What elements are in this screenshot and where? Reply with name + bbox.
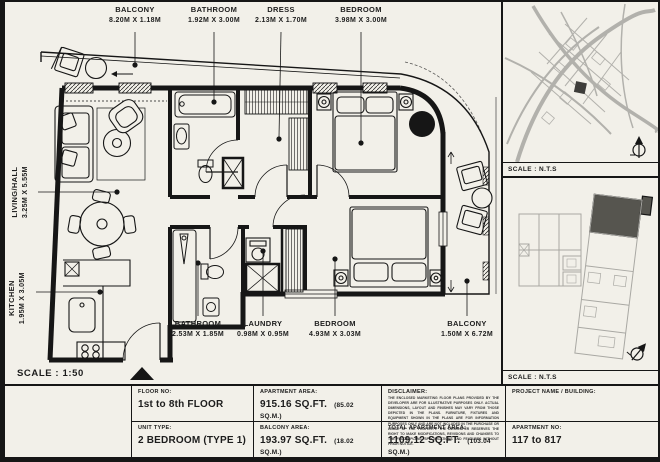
kitchen-counter — [63, 260, 130, 360]
room-label-kitchen: KITCHEN 1.95M X 3.05M — [7, 250, 27, 346]
location-map-panel: SCALE : N.T.S — [503, 2, 658, 176]
total-area-cell: TOTAL APARTMENT AREA: 1109.12 SQ.FT.(103… — [382, 422, 506, 458]
entry-marker-icon — [130, 367, 154, 380]
location-map — [503, 2, 658, 164]
direction-arrow-icon — [111, 71, 133, 77]
balcony-area-cell: BALCONY AREA: 193.97 SQ.FT.(18.02 SQ.M.) — [254, 422, 382, 458]
north-arrow-icon — [625, 337, 651, 363]
bedroom-top-furniture — [317, 92, 435, 172]
bathroom-top-fixtures — [174, 92, 235, 183]
title-block: FLOOR NO: 1st to 8th FLOOR UNIT TYPE: 2 … — [5, 384, 658, 457]
drawing-sheet: BALCONY 8.20M X 1.18M BATHROOM 1.92M X 3… — [0, 0, 660, 462]
room-label-living: LIVING/HALL 3.25M X 5.55M — [10, 144, 30, 240]
key-plan-panel: SCALE : N.T.S — [503, 178, 658, 384]
duct-shafts — [223, 158, 279, 292]
dress-wardrobes — [245, 90, 308, 170]
map-scale-label: SCALE : N.T.S — [508, 166, 557, 173]
blank-cell — [5, 386, 132, 457]
room-label-bedroom-bottom: BEDROOM 4.93M X 3.03M — [285, 319, 385, 339]
dining-table — [68, 189, 137, 260]
floor-no-cell: FLOOR NO: 1st to 8th FLOOR — [132, 386, 254, 422]
apartment-area-cell: APARTMENT AREA: 915.16 SQ.FT.(85.02 SQ.M… — [254, 386, 382, 422]
north-arrow-icon — [630, 136, 645, 158]
highlighted-unit — [590, 194, 642, 238]
keyplan-scale-label: SCALE : N.T.S — [508, 374, 557, 381]
balcony-top-furniture — [51, 46, 106, 78]
room-label-bedroom-top: BEDROOM 3.98M X 3.00M — [311, 5, 411, 25]
site-marker — [574, 81, 587, 94]
apartment-no-cell: APARTMENT NO: 117 to 817 — [506, 422, 658, 458]
plan-scale-label: SCALE : 1:50 — [17, 368, 84, 379]
project-name-cell: PROJECT NAME / BUILDING: — [506, 386, 658, 422]
key-plan — [503, 178, 658, 372]
disclaimer-cell: DISCLAIMER: THE ENCLOSED MARKETING FLOOR… — [382, 386, 506, 422]
unit-type-cell: UNIT TYPE: 2 BEDROOM (TYPE 1) — [132, 422, 254, 458]
bedroom-bottom-furniture — [286, 207, 442, 292]
washing-machine — [246, 238, 270, 262]
